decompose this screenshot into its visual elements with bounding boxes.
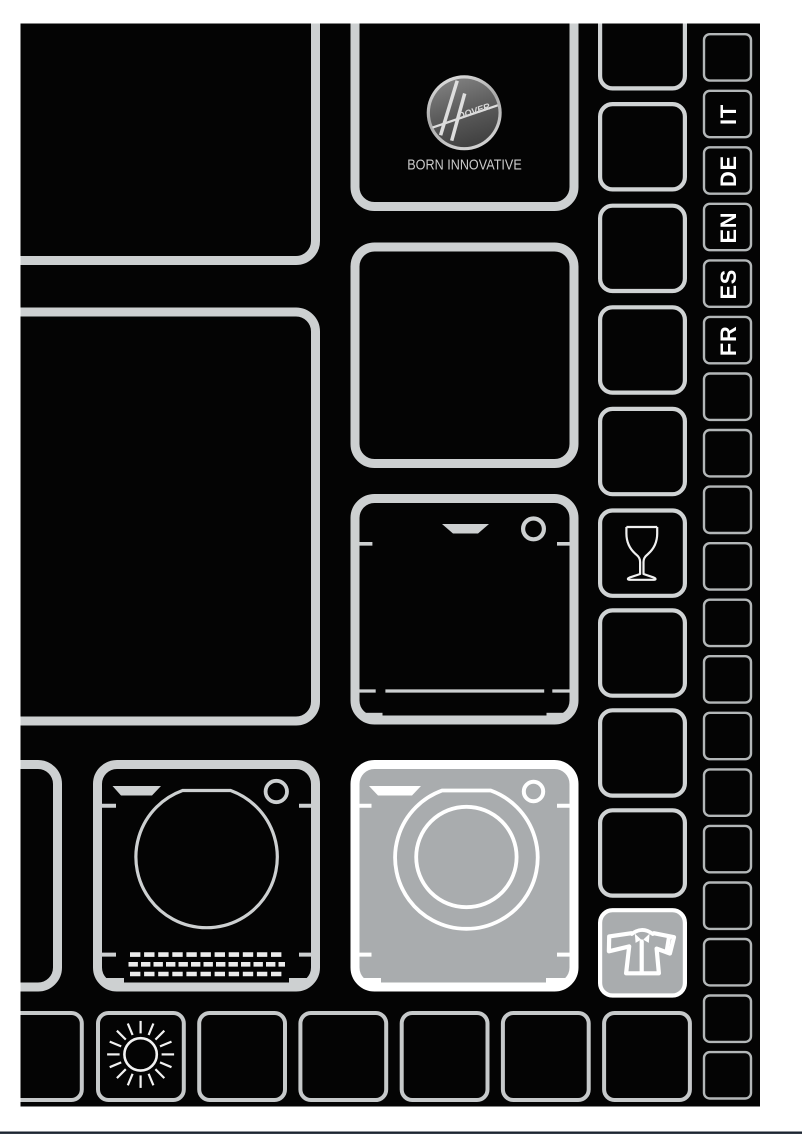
svg-text:BORN INNOVATIVE: BORN INNOVATIVE [407,157,522,174]
svg-text:DE: DE [716,155,741,187]
svg-text:FR: FR [716,325,741,356]
svg-text:EN: EN [716,212,741,244]
svg-text:ES: ES [716,269,741,300]
svg-text:IT: IT [716,104,741,125]
